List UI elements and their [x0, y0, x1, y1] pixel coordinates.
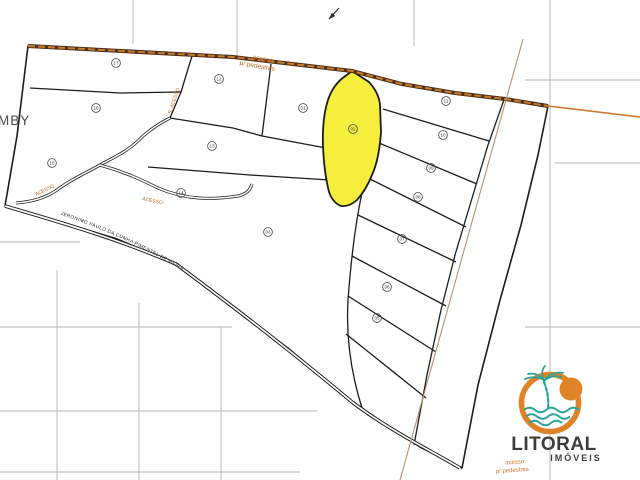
logo-sun-icon	[560, 378, 583, 401]
svg-text:12: 12	[216, 77, 222, 82]
svg-text:10: 10	[440, 133, 446, 138]
logo-name: LITORAL	[511, 434, 596, 455]
svg-text:06: 06	[384, 285, 390, 290]
region-label: MBY	[0, 113, 30, 128]
svg-text:07: 07	[399, 237, 405, 242]
svg-text:14: 14	[178, 191, 184, 196]
svg-text:03: 03	[265, 230, 271, 235]
svg-text:15: 15	[49, 161, 55, 166]
svg-text:01: 01	[300, 106, 306, 111]
plat-map-screenshot: JERONIMO PAULO DA CUNHA PIMENTEL DE MEIR…	[0, 0, 640, 480]
svg-text:11: 11	[444, 99, 449, 104]
logo-subtitle: IMÓVEIS	[550, 452, 602, 463]
svg-text:17: 17	[113, 61, 119, 66]
north-arrow-icon	[329, 8, 339, 19]
svg-text:08: 08	[415, 195, 421, 200]
svg-text:13: 13	[209, 144, 215, 149]
property-boundary	[5, 46, 548, 468]
subdivision-plat-map: JERONIMO PAULO DA CUNHA PIMENTEL DE MEIR…	[0, 0, 640, 480]
svg-text:09: 09	[428, 166, 434, 171]
pedestrian-access-label-bottom: acesso p/ pedestres	[495, 459, 529, 475]
svg-text:16: 16	[93, 106, 99, 111]
access-bottom-line1: acesso	[505, 459, 525, 466]
litoral-logo: LITORAL IMÓVEIS	[511, 366, 602, 463]
svg-text:05: 05	[374, 316, 380, 321]
access-bottom-line2: p/ pedestres	[496, 467, 529, 475]
svg-text:02: 02	[350, 127, 356, 132]
